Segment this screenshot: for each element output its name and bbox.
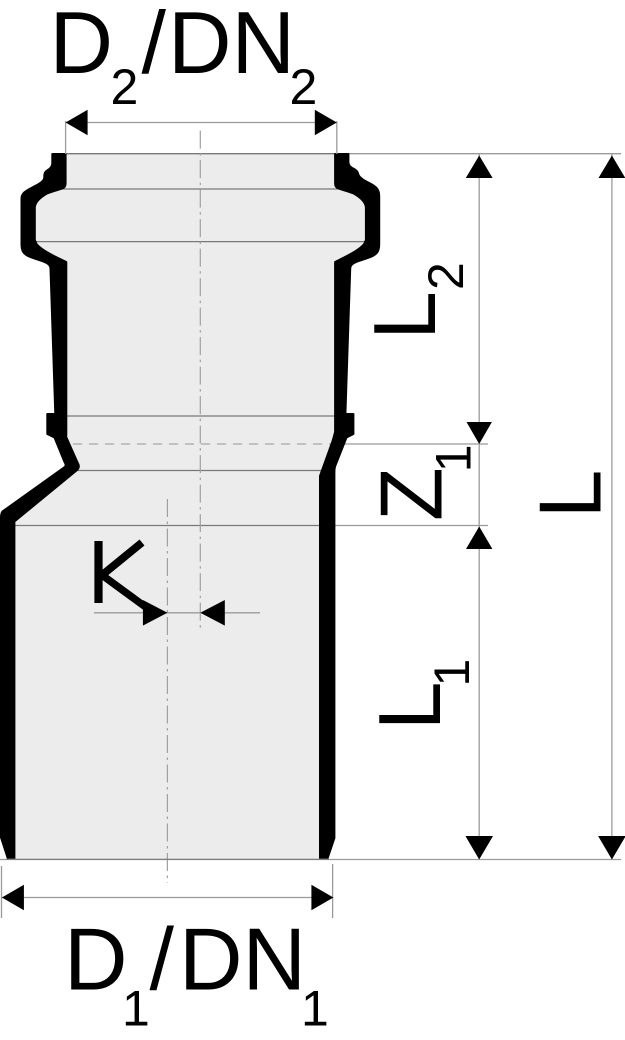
svg-text:L: L xyxy=(521,470,620,519)
